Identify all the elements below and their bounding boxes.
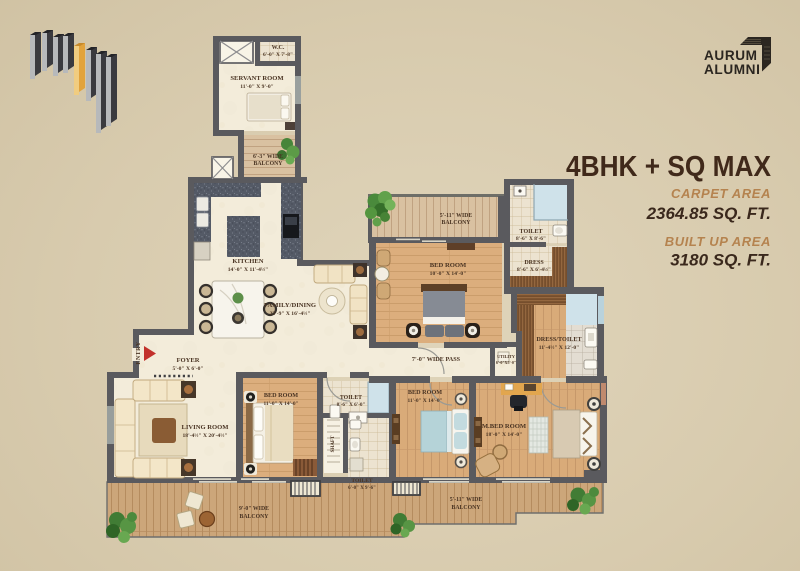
svg-text:5'-11" WIDE: 5'-11" WIDE xyxy=(440,213,473,219)
svg-text:BALCONY: BALCONY xyxy=(452,505,482,511)
svg-text:23'-9" X 16'-4½": 23'-9" X 16'-4½" xyxy=(270,310,311,317)
svg-text:18'-0" X 14'-0": 18'-0" X 14'-0" xyxy=(486,432,523,438)
svg-text:8'-6" X 8'-6": 8'-6" X 8'-6" xyxy=(516,236,546,242)
svg-text:CARPET AREA: CARPET AREA xyxy=(671,186,771,201)
svg-text:4BHK + SQ MAX: 4BHK + SQ MAX xyxy=(566,151,771,183)
svg-text:3180 SQ. FT.: 3180 SQ. FT. xyxy=(670,251,771,270)
svg-text:FAMILY/DINING: FAMILY/DINING xyxy=(264,302,316,309)
svg-text:9'-0" WIDE: 9'-0" WIDE xyxy=(239,506,269,512)
svg-text:BALCONY: BALCONY xyxy=(254,161,284,167)
svg-text:7'-0" WIDE PASS: 7'-0" WIDE PASS xyxy=(412,356,461,363)
svg-text:5'-11" WIDE: 5'-11" WIDE xyxy=(450,497,483,503)
svg-text:BED ROOM: BED ROOM xyxy=(430,262,467,269)
svg-text:AURUM: AURUM xyxy=(704,48,758,63)
svg-text:ALUMNI: ALUMNI xyxy=(704,62,760,77)
svg-text:5'-0" X 6'-0": 5'-0" X 6'-0" xyxy=(172,366,203,372)
svg-text:TOILET: TOILET xyxy=(520,229,543,235)
svg-text:SHAFT: SHAFT xyxy=(331,435,336,452)
svg-text:6'-0" X 9'-6": 6'-0" X 9'-6" xyxy=(348,486,376,491)
svg-text:ENTRY: ENTRY xyxy=(136,341,142,364)
svg-text:6'-0" X 7'-8": 6'-0" X 7'-8" xyxy=(263,52,293,58)
svg-text:10'-0" X 14'-0": 10'-0" X 14'-0" xyxy=(430,271,467,277)
svg-text:FOYER: FOYER xyxy=(176,357,199,364)
svg-text:UTILITY: UTILITY xyxy=(497,354,515,359)
svg-text:11'-0" X 14'-0": 11'-0" X 14'-0" xyxy=(263,401,298,407)
svg-text:TOILET: TOILET xyxy=(351,478,373,484)
svg-text:18'-4½" X 20'-4½": 18'-4½" X 20'-4½" xyxy=(182,432,227,439)
svg-text:SERVANT ROOM: SERVANT ROOM xyxy=(230,75,284,82)
svg-text:11'-4½" X 12'-0": 11'-4½" X 12'-0" xyxy=(539,344,580,351)
svg-text:KITCHEN: KITCHEN xyxy=(232,258,263,265)
svg-text:8'-6" X 6'-4½": 8'-6" X 6'-4½" xyxy=(517,266,551,273)
svg-text:W.C.: W.C. xyxy=(272,45,285,51)
svg-text:8'-6" X 6'-0": 8'-6" X 6'-0" xyxy=(337,402,366,408)
svg-text:6'-3" WIDE: 6'-3" WIDE xyxy=(253,154,283,160)
svg-text:BED ROOM: BED ROOM xyxy=(408,389,442,396)
svg-text:11'-0" X 14'-0": 11'-0" X 14'-0" xyxy=(407,398,442,404)
svg-text:BED ROOM: BED ROOM xyxy=(264,392,298,399)
svg-text:11'-0" X 9'-0": 11'-0" X 9'-0" xyxy=(240,84,274,90)
svg-text:BALCONY: BALCONY xyxy=(442,220,472,226)
svg-text:2364.85 SQ. FT.: 2364.85 SQ. FT. xyxy=(646,204,771,223)
svg-text:M.BED ROOM: M.BED ROOM xyxy=(482,423,527,430)
svg-text:6'-0"X5'-0": 6'-0"X5'-0" xyxy=(496,360,516,365)
svg-text:BALCONY: BALCONY xyxy=(240,514,270,520)
svg-text:BUILT UP AREA: BUILT UP AREA xyxy=(665,234,771,249)
svg-text:14'-0" X 11'-4½": 14'-0" X 11'-4½" xyxy=(228,266,269,273)
svg-text:LIVING ROOM: LIVING ROOM xyxy=(181,424,229,431)
svg-text:TOILET: TOILET xyxy=(340,395,362,401)
svg-text:DRESS: DRESS xyxy=(524,260,544,266)
svg-text:DRESS/TOILET: DRESS/TOILET xyxy=(536,336,582,343)
